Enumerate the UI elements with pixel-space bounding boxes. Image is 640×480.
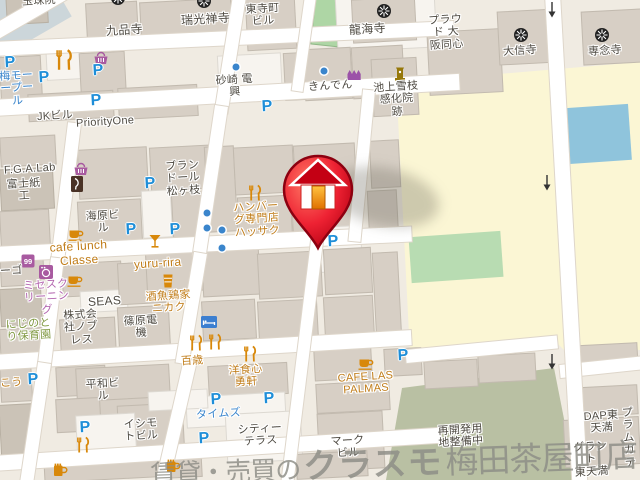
map-label-yuru-rira: yuru-rira: [134, 256, 182, 272]
parking-marker: P: [125, 221, 137, 240]
temple-icon: [197, 0, 212, 9]
parking-marker: P: [169, 221, 181, 240]
shop-99-icon: 99: [22, 255, 35, 268]
map-label-proud-osaka-doshin: プラウ ド 大 阪同心: [428, 13, 464, 52]
map-label-jk-bldg: JKビル: [37, 109, 74, 124]
map-label-ikegami-yukie-site: 池上雪枝 感化院 跡: [373, 80, 420, 120]
map-label-nijinotori-hoikuen: にじのと り保育園: [5, 317, 52, 345]
map-label-yoshoku-shin-yuken: 洋食心 勇軒: [228, 363, 263, 390]
watermark-logo: クラスモ: [302, 434, 443, 480]
map-label-shinohara-denki: 篠原電 機: [123, 314, 158, 341]
parking-marker: P: [38, 69, 50, 88]
map-label-noblesse: 株式会 社ノブ レス: [63, 308, 99, 347]
poi-dot: [219, 227, 226, 234]
parking-marker: P: [79, 419, 91, 438]
parking-marker: P: [397, 347, 409, 366]
parking-marker: P: [263, 390, 275, 409]
map-label-cafe-las-palmas: CAFE LAS PALMAS: [337, 369, 394, 397]
map-label-sunazaki-denko: 砂崎 電 興: [215, 73, 254, 100]
building: [201, 249, 261, 298]
map-label-sennenji: 専念寺: [588, 44, 623, 58]
parking-marker: P: [210, 391, 222, 410]
cafe-cup-icon: [67, 273, 84, 288]
map-label-heiwa-bldg: 平和ビ ル: [85, 377, 120, 404]
building: [0, 209, 51, 250]
building: [372, 251, 403, 340]
restaurant-icon: [54, 49, 75, 71]
water-pool: [564, 104, 632, 164]
map-label-fujishiko: 富士紙 工: [6, 177, 41, 204]
cocktail-icon: [148, 234, 162, 248]
property-location-pin: [276, 142, 360, 272]
shopping-basket-icon: [73, 162, 89, 176]
map-label-partial-kou: こう: [0, 376, 23, 390]
poi-dot: [219, 245, 226, 252]
watermark-prefix: 賃貸・売買の: [150, 449, 301, 480]
building: [423, 359, 478, 390]
poi-dot: [204, 210, 211, 217]
drink-glass-icon: [162, 274, 174, 289]
poi-dot: [204, 225, 211, 232]
map-label-nikaku: 酒魚鶏家 ニカク: [145, 289, 192, 317]
map-label-ume-motor-pool: 梅モー ープー ル: [0, 69, 35, 108]
map-label-hamburg-hassaku: ハンバー グ専門店 ハッサク: [233, 200, 280, 240]
oneway-arrow-icon: [548, 354, 557, 370]
parking-marker: P: [144, 175, 156, 194]
hotel-bed-icon: [201, 316, 217, 328]
map-label-daishinji: 大信寺: [503, 44, 538, 58]
beer-mug-icon: [52, 462, 68, 478]
parking-marker: P: [27, 371, 39, 390]
park-green: [409, 231, 504, 283]
store-watermark: 賃貸・売買の クラスモ 梅田茶屋町店: [149, 428, 638, 480]
watermark-suffix: 梅田茶屋町店: [444, 429, 638, 480]
restaurant-icon: [188, 335, 204, 352]
oneway-arrow-icon: [548, 2, 557, 18]
map-label-kaihara-bldg: 海原ビ ル: [85, 209, 120, 236]
oneway-arrow-icon: [543, 175, 552, 191]
map-label-ishimoto-bldg: イシモ トビル: [123, 417, 158, 444]
map-label-kuhonji: 九品寺: [106, 23, 144, 39]
map-label-cafe-lunch-classe: cafe lunch Classe: [49, 238, 108, 269]
restaurant-icon: [207, 334, 223, 351]
poi-dot: [321, 68, 328, 75]
cafe-cup-icon: [358, 356, 375, 371]
temple-icon: [111, 0, 126, 6]
map-label-ryukaiji: 龍海寺: [349, 22, 387, 38]
map-label-hyakusai: 百歳: [181, 354, 204, 368]
svg-text:99: 99: [24, 257, 32, 266]
map-label-partial-go: ーゴ: [0, 264, 23, 278]
poi-dot: [233, 64, 240, 71]
restaurant-icon: [75, 437, 91, 454]
temple-icon: [595, 28, 610, 43]
knife-shop-icon: [71, 176, 83, 192]
temple-icon: [377, 4, 392, 19]
restaurant-icon: [242, 346, 258, 363]
parking-marker: P: [261, 98, 273, 117]
map-label-priority-one: PriorityOne: [76, 114, 135, 130]
parking-marker: P: [90, 92, 102, 111]
map-canvas[interactable]: 99PPPPPPPPPPPPPPP 玉珠院九品寺瑞光禅寺東寺町 ビル龍海寺プラウ…: [0, 0, 640, 480]
building: [477, 353, 536, 384]
temple-icon: [514, 28, 529, 43]
restaurant-icon: [247, 185, 263, 202]
map-label-tojicho-bldg: 東寺町 ビル: [245, 2, 280, 29]
map-label-brandol-matsugae: ブラン ドール 松ヶ枝: [165, 159, 201, 198]
parking-marker: P: [92, 62, 104, 81]
